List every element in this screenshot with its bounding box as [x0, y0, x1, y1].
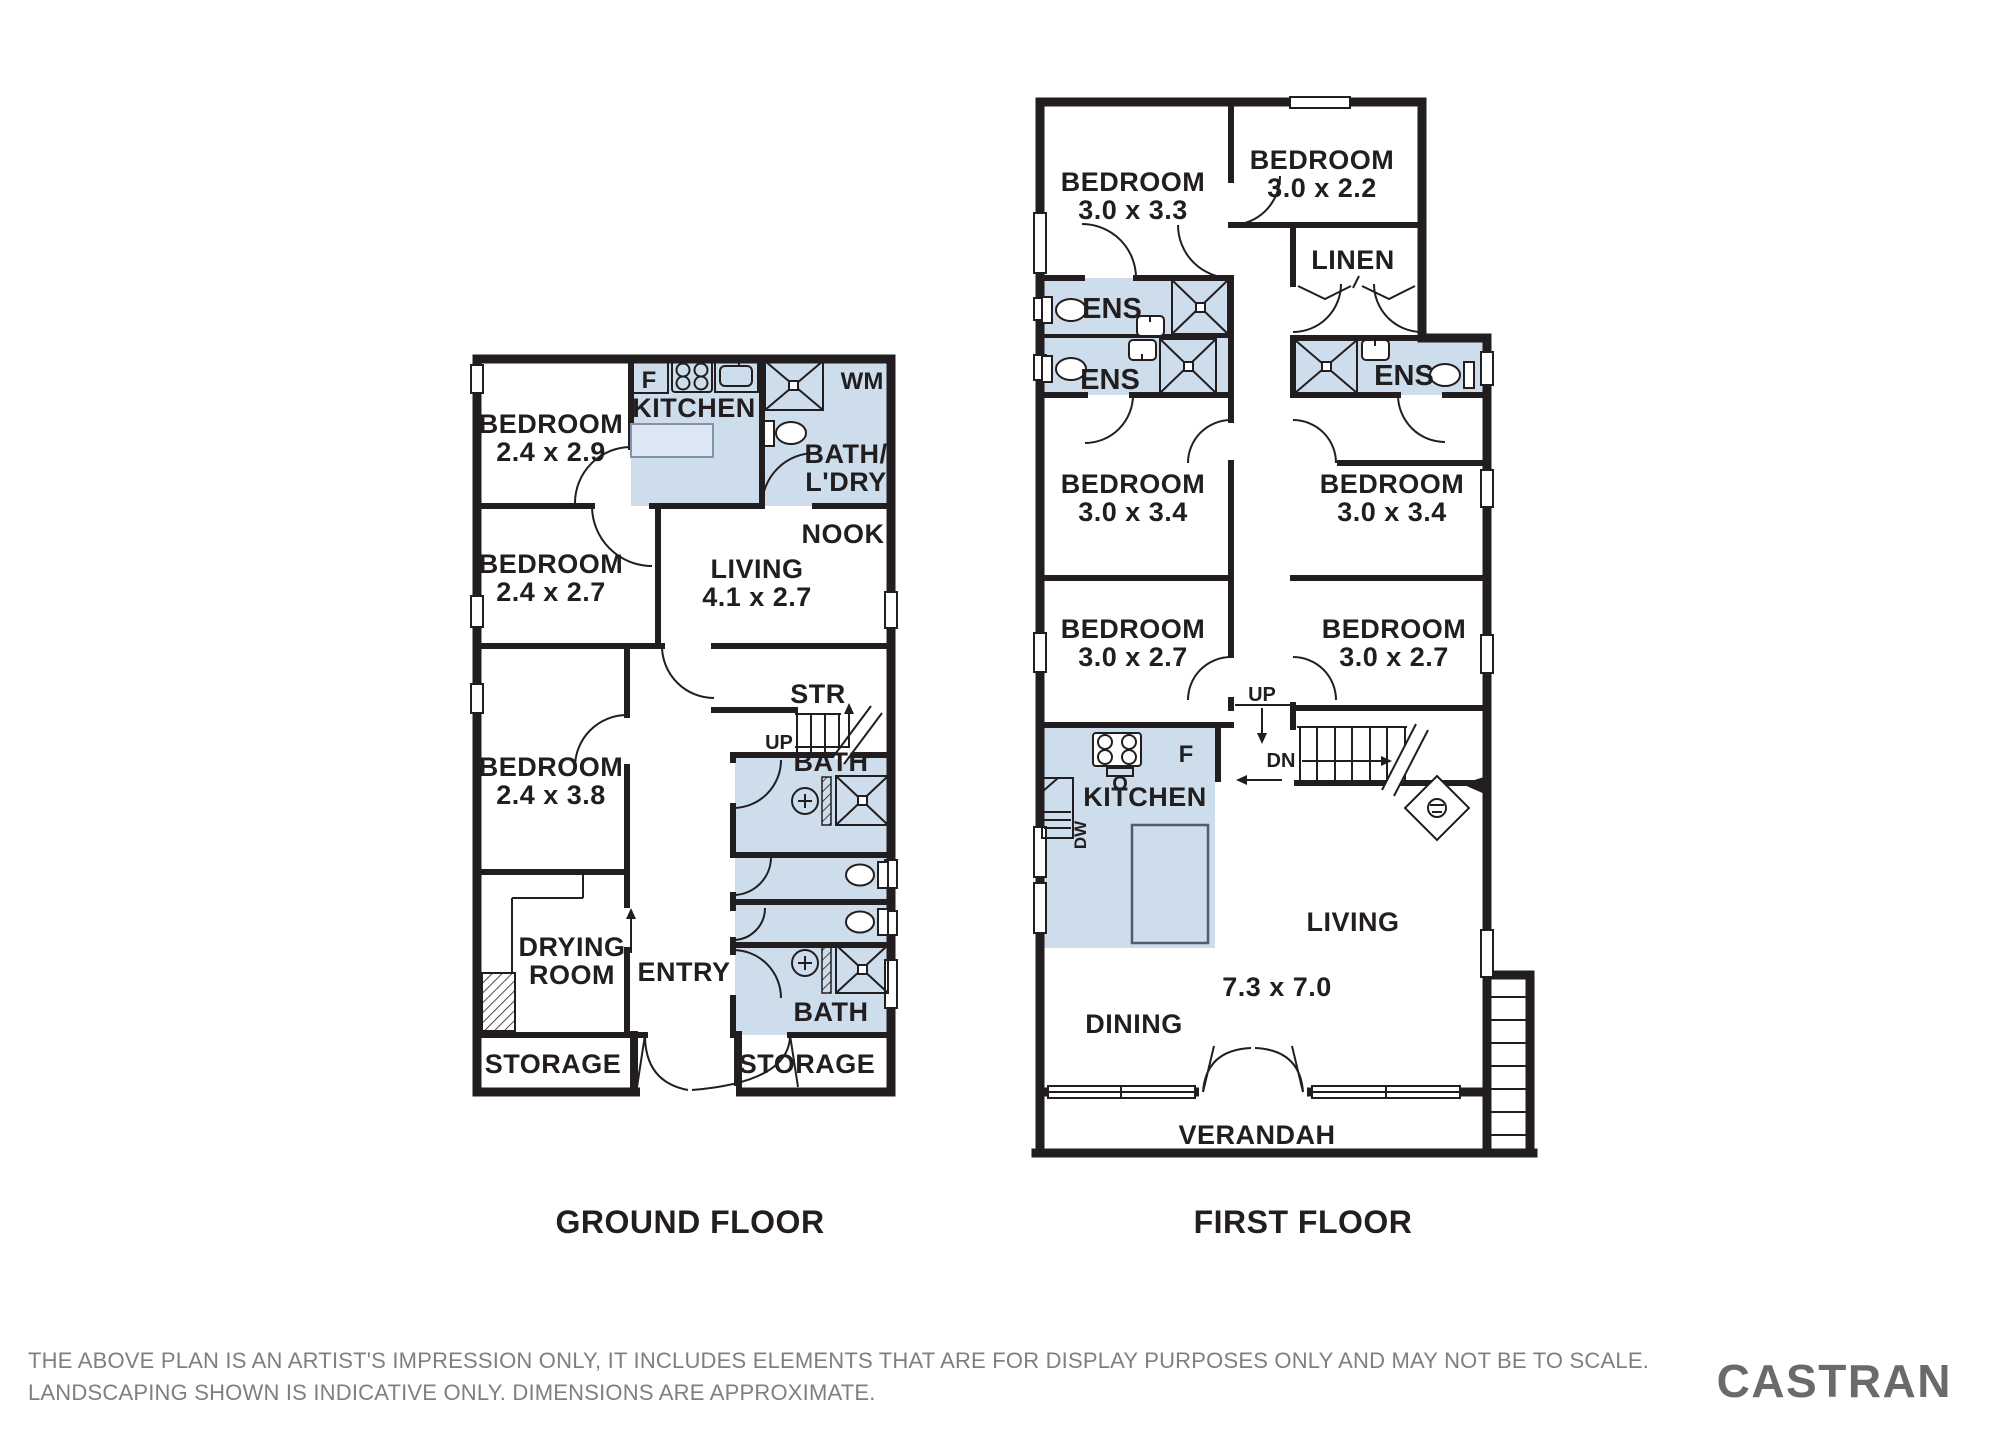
ground-bed2-label: BEDROOM	[479, 549, 624, 579]
external-stairs	[1489, 997, 1529, 1135]
linen-bifold-doors	[1298, 276, 1415, 299]
verandah-label: VERANDAH	[1178, 1120, 1335, 1150]
divider-hatch	[822, 945, 831, 993]
stove-icon	[1093, 733, 1141, 766]
first-living-label: LIVING	[1306, 907, 1399, 937]
ground-kitchen-label: KITCHEN	[632, 393, 756, 423]
first-bedB-dims: 3.0 x 2.2	[1267, 173, 1377, 203]
brand-logo: CASTRAN	[1717, 1355, 1952, 1407]
first-up-label: UP	[1248, 684, 1276, 706]
first-bedC-label: BEDROOM	[1061, 469, 1206, 499]
ground-bed2-dims: 2.4 x 2.7	[496, 577, 606, 607]
first-kitchen-label: KITCHEN	[1083, 782, 1207, 812]
dishwasher-label: DW	[1071, 820, 1090, 849]
storage-left-label: STORAGE	[485, 1049, 622, 1079]
first-bedF-dims: 3.0 x 2.7	[1339, 642, 1449, 672]
footer: THE ABOVE PLAN IS AN ARTIST'S IMPRESSION…	[28, 1348, 1952, 1407]
linen-label: LINEN	[1311, 245, 1395, 275]
ground-floor-plan: BEDROOM 2.4 x 2.9 KITCHEN F WM BATH/ L'D…	[471, 359, 897, 1240]
first-dn-label: DN	[1267, 750, 1296, 772]
ens3-label: ENS	[1374, 360, 1434, 392]
ens2-label: ENS	[1080, 364, 1140, 396]
kitchen-counter	[631, 424, 713, 457]
first-fridge-label: F	[1179, 741, 1194, 768]
first-floor-title: FIRST FLOOR	[1194, 1204, 1413, 1240]
drying-room-label-2: ROOM	[529, 960, 615, 990]
front-entry-opening	[640, 1086, 736, 1098]
first-bedF-label: BEDROOM	[1322, 614, 1467, 644]
drying-room-label-1: DRYING	[518, 932, 625, 962]
ground-bed3-dims: 2.4 x 3.8	[496, 780, 606, 810]
first-bedB-label: BEDROOM	[1250, 145, 1395, 175]
storage-right-label: STORAGE	[739, 1049, 876, 1079]
bath-ldry-label-2: L'DRY	[805, 467, 886, 497]
vanity-icon	[1362, 340, 1389, 360]
entry-label: ENTRY	[637, 957, 730, 987]
first-bedA-dims: 3.0 x 3.3	[1078, 195, 1188, 225]
toilet-icon	[1430, 362, 1474, 388]
toilet-icon	[846, 862, 888, 888]
first-bedD-dims: 3.0 x 3.4	[1337, 497, 1447, 527]
dining-label: DINING	[1085, 1009, 1183, 1039]
ground-bath-upper-label: BATH	[794, 747, 869, 777]
ground-bath-lower-label: BATH	[794, 997, 869, 1027]
ground-living-label: LIVING	[710, 554, 803, 584]
floorplan-canvas: BEDROOM 2.4 x 2.9 KITCHEN F WM BATH/ L'D…	[0, 0, 1990, 1440]
first-bedA-label: BEDROOM	[1061, 167, 1206, 197]
washing-machine-label: WM	[841, 368, 884, 395]
ground-fridge-label: F	[642, 367, 657, 394]
ground-floor-title: GROUND FLOOR	[555, 1204, 824, 1240]
ground-living-dims: 4.1 x 2.7	[702, 582, 812, 612]
str-label: STR	[790, 679, 846, 709]
disclaimer-line-2: LANDSCAPING SHOWN IS INDICATIVE ONLY. DI…	[28, 1380, 876, 1405]
ground-bed1-dims: 2.4 x 2.9	[496, 437, 606, 467]
drying-room-hatch	[482, 973, 515, 1031]
nook-label: NOOK	[802, 519, 885, 549]
bath-ldry-label-1: BATH/	[805, 439, 888, 469]
entry-arrow	[626, 908, 636, 953]
first-bedE-dims: 3.0 x 2.7	[1078, 642, 1188, 672]
ens1-label: ENS	[1082, 293, 1142, 325]
vanity-icon	[1129, 340, 1156, 360]
toilet-icon	[764, 421, 806, 446]
first-living-dims: 7.3 x 7.0	[1222, 972, 1332, 1002]
ground-bed3-label: BEDROOM	[479, 752, 624, 782]
ground-up-label: UP	[765, 732, 793, 754]
toilet-icon	[1042, 297, 1086, 323]
kitchen-island	[1132, 825, 1208, 943]
ground-bed1-label: BEDROOM	[479, 409, 624, 439]
first-bedD-label: BEDROOM	[1320, 469, 1465, 499]
divider-hatch	[822, 777, 831, 825]
first-bedE-label: BEDROOM	[1061, 614, 1206, 644]
toilet-icon	[846, 909, 888, 935]
first-bedC-dims: 3.0 x 3.4	[1078, 497, 1188, 527]
disclaimer-line-1: THE ABOVE PLAN IS AN ARTIST'S IMPRESSION…	[28, 1348, 1649, 1373]
first-floor-plan: BEDROOM 3.0 x 3.3 BEDROOM 3.0 x 2.2 LINE…	[1034, 97, 1533, 1240]
